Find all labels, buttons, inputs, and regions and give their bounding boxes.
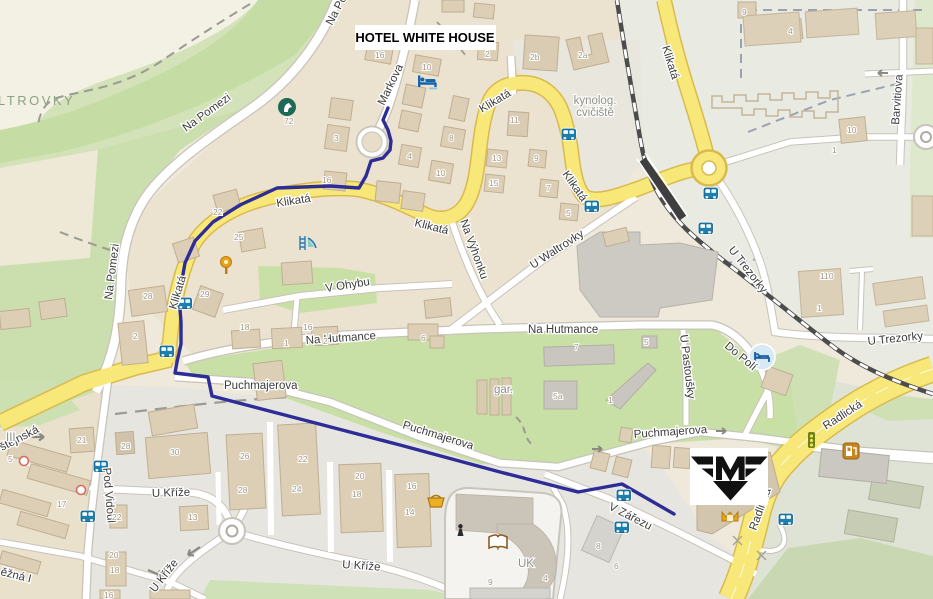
svg-text:18: 18 xyxy=(240,322,250,332)
svg-text:1: 1 xyxy=(284,338,289,348)
svg-text:4: 4 xyxy=(543,573,548,583)
svg-text:1: 1 xyxy=(817,303,822,313)
svg-text:6: 6 xyxy=(421,333,426,343)
svg-text:kynolog.: kynolog. xyxy=(574,95,617,107)
svg-text:HOTEL WHITE HOUSE: HOTEL WHITE HOUSE xyxy=(355,30,494,45)
svg-text:13: 13 xyxy=(188,512,198,522)
svg-text:LTROVKY: LTROVKY xyxy=(0,93,75,108)
svg-text:10: 10 xyxy=(422,62,432,72)
svg-text:22: 22 xyxy=(112,512,122,522)
svg-text:20: 20 xyxy=(109,550,119,560)
svg-text:4: 4 xyxy=(407,151,412,161)
svg-text:10: 10 xyxy=(847,125,857,135)
svg-text:2a: 2a xyxy=(578,50,588,60)
svg-text:gar.: gar. xyxy=(494,384,513,396)
svg-text:17: 17 xyxy=(57,499,67,509)
svg-text:3: 3 xyxy=(334,133,339,143)
svg-text:28: 28 xyxy=(238,485,248,495)
svg-text:9: 9 xyxy=(534,153,539,163)
svg-text:8: 8 xyxy=(449,133,454,143)
svg-text:22: 22 xyxy=(213,207,223,217)
svg-text:11: 11 xyxy=(510,115,519,125)
svg-text:28: 28 xyxy=(143,291,153,301)
svg-text:21: 21 xyxy=(77,435,87,445)
svg-text:5: 5 xyxy=(8,454,13,464)
svg-text:110: 110 xyxy=(820,271,834,281)
svg-text:14: 14 xyxy=(405,507,415,517)
svg-text:2: 2 xyxy=(323,336,328,346)
svg-text:18: 18 xyxy=(110,565,120,575)
svg-text:16: 16 xyxy=(104,590,114,599)
svg-text:16: 16 xyxy=(375,50,385,60)
svg-text:30: 30 xyxy=(170,447,180,457)
svg-text:9: 9 xyxy=(742,7,747,17)
svg-text:5: 5 xyxy=(644,337,649,347)
svg-text:8: 8 xyxy=(596,541,601,551)
svg-text:U Kříže: U Kříže xyxy=(152,487,191,500)
svg-text:2: 2 xyxy=(485,49,490,59)
svg-text:7: 7 xyxy=(546,183,551,193)
svg-text:15: 15 xyxy=(489,178,499,188)
svg-text:18: 18 xyxy=(352,489,362,499)
svg-text:2b: 2b xyxy=(530,52,540,62)
svg-text:22: 22 xyxy=(298,454,308,464)
svg-text:Puchmajerova: Puchmajerova xyxy=(224,380,298,392)
svg-text:5: 5 xyxy=(566,208,571,218)
svg-text:1: 1 xyxy=(608,395,613,405)
svg-text:13: 13 xyxy=(492,153,502,163)
svg-text:16: 16 xyxy=(322,175,332,185)
svg-text:28: 28 xyxy=(121,441,131,451)
svg-text:2: 2 xyxy=(133,331,138,341)
svg-text:16: 16 xyxy=(303,322,313,332)
svg-text:9: 9 xyxy=(488,577,493,587)
svg-text:III: III xyxy=(6,432,16,444)
svg-text:Na Hutmance: Na Hutmance xyxy=(528,324,598,336)
svg-text:24: 24 xyxy=(292,484,302,494)
svg-text:26: 26 xyxy=(240,451,250,461)
svg-text:cvičiště: cvičiště xyxy=(576,107,614,119)
svg-text:16: 16 xyxy=(407,481,417,491)
svg-text:1: 1 xyxy=(832,145,837,155)
svg-text:UK: UK xyxy=(518,558,534,570)
svg-text:25: 25 xyxy=(234,232,244,242)
svg-text:29: 29 xyxy=(200,289,210,299)
svg-text:6: 6 xyxy=(614,561,619,571)
svg-text:10: 10 xyxy=(436,168,446,178)
svg-text:7: 7 xyxy=(574,342,579,352)
svg-text:20: 20 xyxy=(355,471,365,481)
svg-text:72: 72 xyxy=(284,116,294,126)
svg-text:5a: 5a xyxy=(553,391,563,401)
svg-text:4: 4 xyxy=(788,26,793,36)
